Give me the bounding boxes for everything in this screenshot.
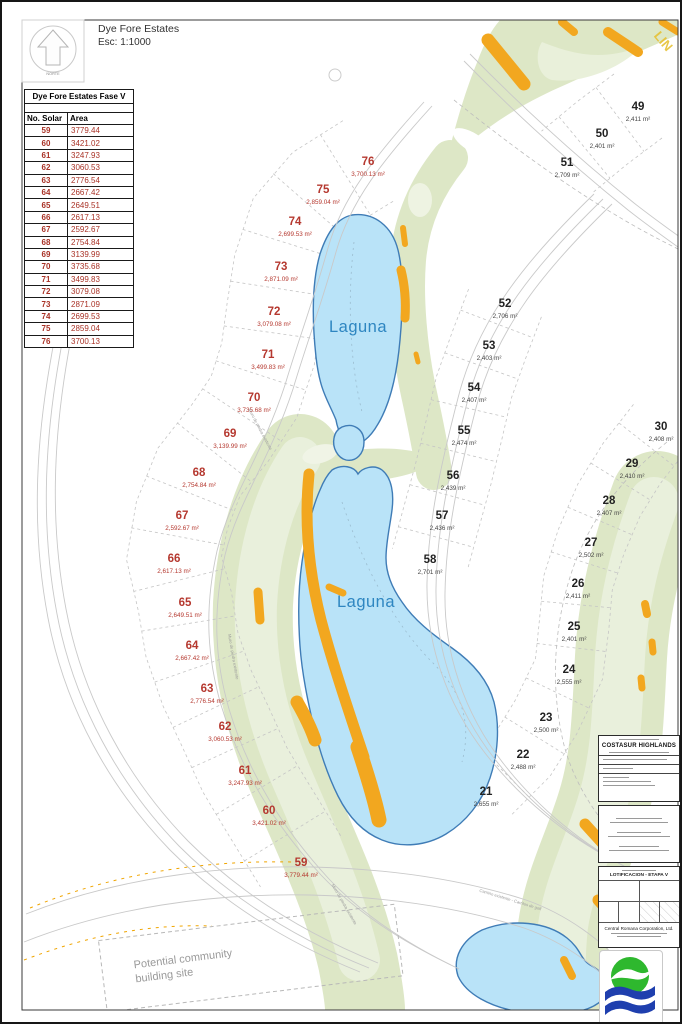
lot-number-label: 60	[263, 805, 276, 817]
lot-area-label: 2,401 m²	[562, 636, 587, 643]
lot-no-cell: 69	[25, 248, 68, 260]
sun-and-waves-logo-icon	[600, 951, 660, 1023]
table-row: 732871.09	[25, 298, 134, 310]
lot-area-label: 3,421.02 m²	[252, 820, 286, 827]
lot-area-label: 2,706 m²	[493, 313, 518, 320]
lot-number-label: 24	[563, 664, 576, 676]
lot-number-label: 59	[295, 857, 308, 869]
lot-area-label: 2,439 m²	[441, 485, 466, 492]
lot-number-label: 65	[179, 597, 192, 609]
titleblock-notes-box	[598, 805, 680, 863]
titleblock-stage-box: LOTIFICACION - ETAPA V Central Romana Co…	[598, 866, 680, 948]
drawing-scale: Esc: 1:1000	[98, 36, 179, 49]
lot-area-cell: 2592.67	[68, 224, 134, 236]
lot-number-label: 58	[424, 554, 437, 566]
lot-area-label: 2,701 m²	[418, 569, 443, 576]
road-marker	[329, 69, 341, 81]
lot-number-label: 53	[483, 340, 496, 352]
lot-area-cell: 3700.13	[68, 335, 134, 347]
lot-no-cell: 60	[25, 137, 68, 149]
lot-number-label: 28	[603, 495, 616, 507]
lot-number-label: 25	[568, 621, 581, 633]
lot-area-label: 3,499.83 m²	[251, 364, 285, 371]
lot-number-label: 63	[201, 683, 214, 695]
lot-number-label: 54	[468, 382, 481, 394]
lot-number-label: 69	[224, 428, 237, 440]
project-name: COSTASUR HIGHLANDS	[599, 743, 679, 749]
table-row: 723079.08	[25, 286, 134, 298]
lot-no-cell: 66	[25, 211, 68, 223]
lot-table-title: Dye Fore Estates Fase V	[25, 90, 134, 104]
lot-area-label: 2,407 m²	[462, 397, 487, 404]
table-row: 713499.83	[25, 273, 134, 285]
lot-area-cell: 3139.99	[68, 248, 134, 260]
column-header-no-solar: No. Solar	[25, 113, 68, 125]
lot-number-label: 64	[186, 640, 199, 652]
lot-area-cell: 3247.93	[68, 149, 134, 161]
lot-number-label: 51	[561, 157, 574, 169]
lot-area-cell: 3421.02	[68, 137, 134, 149]
lot-no-cell: 71	[25, 273, 68, 285]
table-row: 613247.93	[25, 149, 134, 161]
lot-area-label: 2,617.13 m²	[157, 568, 191, 575]
lot-area-label: 3,060.53 m²	[208, 736, 242, 743]
lot-no-cell: 68	[25, 236, 68, 248]
lot-area-label: 2,500 m²	[534, 727, 559, 734]
lot-area-label: 2,502 m²	[579, 552, 604, 559]
north-arrow-compass: NORTE	[22, 20, 84, 82]
lot-number-label: 72	[268, 306, 281, 318]
lot-area-cell: 2649.51	[68, 199, 134, 211]
lot-number-label: 74	[289, 216, 302, 228]
table-row: 693139.99	[25, 248, 134, 260]
lot-boundary-line	[505, 717, 564, 754]
lot-area-label: 2,436 m²	[430, 525, 455, 532]
table-row: 672592.67	[25, 224, 134, 236]
lot-no-cell: 74	[25, 310, 68, 322]
lot-area-label: 3,700.13 m²	[351, 171, 385, 178]
lot-area-cell: 3060.53	[68, 162, 134, 174]
lot-area-label: 2,655 m²	[474, 801, 499, 808]
company-logo	[599, 950, 663, 1024]
lot-number-label: 26	[572, 578, 585, 590]
lot-number-label: 55	[458, 425, 471, 437]
lot-area-label: 2,699.53 m²	[278, 231, 312, 238]
lot-area-label: 2,403 m²	[477, 355, 502, 362]
lot-number-label: 75	[317, 184, 330, 196]
table-row: 632776.54	[25, 174, 134, 186]
lot-area-label: 2,592.67 m²	[165, 525, 199, 532]
column-header-area: Area	[68, 113, 134, 125]
table-row: 763700.13	[25, 335, 134, 347]
drawing-header: Dye Fore Estates Esc: 1:1000	[98, 23, 179, 49]
lot-boundary-line	[231, 281, 325, 296]
table-row: 752859.04	[25, 323, 134, 335]
lot-area-label: 3,779.44 m²	[284, 872, 318, 879]
stage-label: LOTIFICACION - ETAPA V	[599, 873, 679, 878]
table-row: 703735.68	[25, 261, 134, 273]
lot-no-cell: 73	[25, 298, 68, 310]
lot-area-cell: 2754.84	[68, 236, 134, 248]
lot-area-cell: 3735.68	[68, 261, 134, 273]
lot-number-label: 61	[239, 765, 252, 777]
lot-area-label: 2,871.09 m²	[264, 276, 298, 283]
table-row: 642667.42	[25, 186, 134, 198]
lot-area-cell: 3499.83	[68, 273, 134, 285]
lot-area-label: 2,555 m²	[557, 679, 582, 686]
lot-number-label: 52	[499, 298, 512, 310]
lot-number-label: 29	[626, 458, 639, 470]
lot-area-label: 2,411 m²	[566, 593, 590, 600]
lot-no-cell: 72	[25, 286, 68, 298]
laguna-label: Laguna	[337, 593, 395, 611]
lot-area-label: 2,709 m²	[555, 172, 580, 179]
lot-area-label: 2,411 m²	[626, 116, 650, 123]
lot-table-spacer	[25, 104, 134, 113]
titleblock-project-box: COSTASUR HIGHLANDS	[598, 735, 680, 802]
lot-number-label: 66	[168, 553, 181, 565]
lot-area-cell: 2776.54	[68, 174, 134, 186]
lot-number-label: 76	[362, 156, 375, 168]
lot-number-label: 22	[517, 749, 530, 761]
lot-no-cell: 65	[25, 199, 68, 211]
lot-number-label: 23	[540, 712, 553, 724]
lot-no-cell: 76	[25, 335, 68, 347]
lot-number-label: 67	[176, 510, 189, 522]
table-row: 682754.84	[25, 236, 134, 248]
laguna-label: Laguna	[329, 318, 387, 336]
lot-no-cell: 63	[25, 174, 68, 186]
lot-number-label: 56	[447, 470, 460, 482]
lot-area-label: 3,247.93 m²	[228, 780, 262, 787]
lot-area-label: 2,488 m²	[511, 764, 536, 771]
lot-no-cell: 64	[25, 186, 68, 198]
lot-number-label: 71	[262, 349, 275, 361]
lot-area-label: 2,401 m²	[590, 143, 615, 150]
lot-number-label: 27	[585, 537, 598, 549]
lot-area-label: 3,079.08 m²	[257, 321, 291, 328]
lot-area-cell: 2667.42	[68, 186, 134, 198]
lot-number-label: 30	[655, 421, 668, 433]
table-row: 662617.13	[25, 211, 134, 223]
lot-area-cell: 2871.09	[68, 298, 134, 310]
lot-area-label: 2,474 m²	[452, 440, 477, 447]
lot-area-label: 3,139.99 m²	[213, 443, 247, 450]
lot-no-cell: 75	[25, 323, 68, 335]
lot-area-cell: 3779.44	[68, 125, 134, 137]
lot-no-cell: 70	[25, 261, 68, 273]
lot-area-label: 2,667.42 m²	[175, 655, 209, 662]
lot-area-cell: 3079.08	[68, 286, 134, 298]
utility-line	[30, 862, 292, 908]
table-row: 623060.53	[25, 162, 134, 174]
lot-no-cell: 67	[25, 224, 68, 236]
lot-no-cell: 61	[25, 149, 68, 161]
company-name: Central Romana Corporation, Ltd.	[599, 926, 679, 931]
lot-area-label: 2,408 m²	[649, 436, 674, 443]
lot-area-label: 2,407 m²	[597, 510, 622, 517]
lot-area-label: 2,649.51 m²	[168, 612, 202, 619]
lot-boundary-line	[177, 423, 251, 482]
table-row: 652649.51	[25, 199, 134, 211]
laguna-tail-pond	[334, 425, 364, 460]
table-row: 603421.02	[25, 137, 134, 149]
lot-number-label: 21	[480, 786, 493, 798]
lot-number-label: 49	[632, 101, 645, 113]
lot-area-cell: 2617.13	[68, 211, 134, 223]
lot-number-label: 68	[193, 467, 206, 479]
lot-number-label: 62	[219, 721, 232, 733]
lot-area-cell: 2699.53	[68, 310, 134, 322]
lot-area-label: 2,410 m²	[620, 473, 645, 480]
lot-number-label: 50	[596, 128, 609, 140]
lot-no-cell: 62	[25, 162, 68, 174]
table-row: 593779.44	[25, 125, 134, 137]
lot-area-cell: 2859.04	[68, 323, 134, 335]
lot-number-label: 73	[275, 261, 288, 273]
lot-table: Dye Fore Estates Fase V No. Solar Area 5…	[24, 89, 134, 348]
lot-area-label: 2,859.04 m²	[306, 199, 340, 206]
lot-area-label: 2,776.54 m²	[190, 698, 224, 705]
lot-number-label: 57	[436, 510, 449, 522]
lot-number-label: 70	[248, 392, 261, 404]
plan-page: Potential community building site 763,70…	[0, 0, 682, 1024]
table-row: 742699.53	[25, 310, 134, 322]
drawing-title: Dye Fore Estates	[98, 23, 179, 36]
lot-boundary-line	[202, 389, 281, 442]
compass-label: NORTE	[46, 72, 60, 76]
lot-no-cell: 59	[25, 125, 68, 137]
lot-area-label: 2,754.84 m²	[182, 482, 216, 489]
